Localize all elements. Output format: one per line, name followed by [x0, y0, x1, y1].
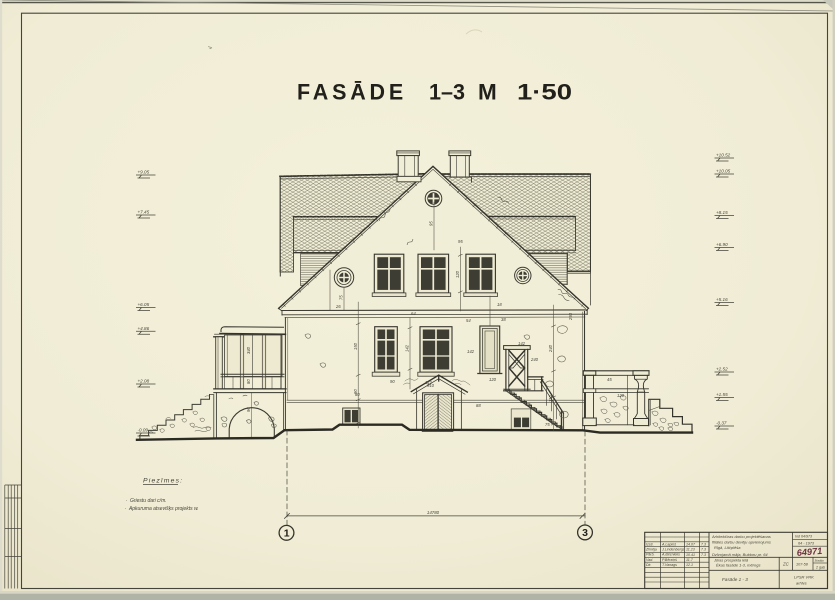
svg-text:240: 240 [548, 344, 553, 353]
svg-text:+6.05: +6.05 [138, 302, 150, 307]
svg-text:112: 112 [425, 380, 432, 385]
svg-text:Piezīmes:: Piezīmes: [143, 478, 183, 485]
svg-text:75: 75 [339, 295, 344, 300]
svg-text:Arhitektūras darbu projektēšan: Arhitektūras darbu projektēšanas [711, 534, 771, 539]
svg-text:P.Bērziņš: P.Bērziņš [662, 558, 677, 562]
svg-text:+2.08: +2.08 [138, 379, 150, 384]
svg-text:-0.37: -0.37 [716, 421, 727, 426]
svg-text:+2.52: +2.52 [716, 367, 728, 372]
svg-text:arhīvs: arhīvs [796, 581, 807, 586]
svg-text:18: 18 [497, 302, 502, 307]
svg-text:96: 96 [246, 407, 251, 412]
svg-text:90: 90 [390, 379, 395, 384]
svg-text:7.3: 7.3 [701, 548, 706, 552]
svg-text:filiāles darbu devēju apvienoj: filiāles darbu devēju apvienojums [712, 540, 771, 545]
svg-text:45: 45 [607, 377, 612, 382]
svg-text:75: 75 [545, 422, 550, 427]
svg-text:1–3: 1–3 [429, 80, 465, 105]
svg-text:+7.45: +7.45 [138, 210, 150, 215]
svg-text:10.41: 10.41 [686, 553, 695, 557]
svg-text:Dzīvojamā māja, Bulduru pr. 64: Dzīvojamā māja, Bulduru pr. 64 [712, 552, 768, 557]
svg-text:+6.90: +6.90 [716, 242, 728, 247]
svg-text:+9.05: +9.05 [138, 170, 150, 175]
svg-text:FASĀDE: FASĀDE [297, 80, 407, 105]
svg-text:T.Vanags: T.Vanags [662, 563, 677, 567]
svg-text:LPSR VRK: LPSR VRK [794, 575, 814, 580]
svg-text:64 - 1973: 64 - 1973 [798, 542, 815, 546]
svg-text:240: 240 [530, 357, 539, 362]
svg-text:150: 150 [353, 342, 358, 350]
svg-text:120: 120 [489, 377, 497, 382]
svg-text:Ind 64/973: Ind 64/973 [795, 535, 812, 539]
svg-text:Ēkas fasāde 1-3, mērogs: Ēkas fasāde 1-3, mērogs [716, 563, 760, 568]
svg-text:· Apkuruma atsevišķs projekts: · Apkuruma atsevišķs projekts w. [125, 506, 199, 512]
svg-text:14780: 14780 [427, 510, 440, 515]
svg-text:107-58: 107-58 [796, 563, 809, 567]
svg-text:-0.09: -0.09 [138, 428, 149, 433]
svg-text:2 gab: 2 gab [815, 566, 825, 570]
svg-text:3: 3 [582, 527, 588, 539]
svg-text:J.Lindenbergs: J.Lindenbergs [661, 547, 685, 551]
svg-text:120: 120 [617, 393, 625, 398]
svg-text:54: 54 [466, 318, 471, 323]
svg-text:95: 95 [429, 221, 434, 226]
svg-text:+10.05: +10.05 [716, 169, 731, 174]
svg-text:1·50: 1·50 [517, 80, 572, 105]
svg-text:+4.86: +4.86 [138, 326, 150, 331]
svg-text:12.1: 12.1 [686, 563, 693, 567]
svg-text:Zīmēja: Zīmēja [645, 547, 657, 551]
svg-text:142: 142 [518, 341, 526, 346]
svg-text:A.Lapiņš: A.Lapiņš [661, 543, 676, 547]
svg-text:80: 80 [355, 392, 360, 397]
svg-text:95: 95 [458, 239, 463, 244]
svg-text:64: 64 [411, 311, 416, 316]
svg-text:7.3: 7.3 [701, 543, 706, 547]
svg-text:88: 88 [476, 403, 481, 408]
svg-text:+10.52: +10.52 [716, 153, 731, 158]
svg-text:11.23: 11.23 [686, 548, 695, 552]
svg-text:+8.15: +8.15 [716, 210, 728, 215]
svg-text:Izstr.: Izstr. [646, 543, 654, 547]
svg-text:340: 340 [246, 346, 251, 354]
svg-text:142: 142 [405, 344, 410, 352]
svg-text:7.3: 7.3 [701, 553, 706, 557]
svg-text:14.07: 14.07 [686, 543, 696, 547]
svg-text:1: 1 [284, 528, 290, 540]
svg-text:Fasāde 1 - 3: Fasāde 1 - 3 [722, 577, 748, 582]
svg-text:Dir.: Dir. [646, 563, 651, 567]
svg-text:Stadija: Stadija [815, 559, 825, 563]
svg-text:M: M [478, 80, 497, 105]
svg-text:110: 110 [548, 395, 553, 402]
svg-text:Rīgā, Lāčplēša: Rīgā, Lāčplēša [714, 545, 741, 550]
svg-text:+1.55: +1.55 [716, 392, 728, 397]
svg-text:80: 80 [246, 379, 251, 384]
svg-text:Vad.: Vad. [646, 558, 653, 562]
svg-text:293: 293 [568, 312, 573, 321]
svg-text:142: 142 [467, 349, 475, 354]
svg-text:Pārb.: Pārb. [646, 553, 655, 557]
svg-text:A.Birznieks: A.Birznieks [661, 553, 680, 557]
svg-text:11.7: 11.7 [686, 558, 694, 562]
svg-text:26: 26 [335, 304, 341, 309]
svg-text:ZC: ZC [782, 562, 790, 567]
svg-text:120: 120 [455, 270, 460, 278]
svg-text:+5.16: +5.16 [716, 297, 728, 302]
svg-text:· Griestu dari c/m.: · Griestu dari c/m. [126, 498, 167, 504]
svg-text:38: 38 [501, 317, 506, 322]
